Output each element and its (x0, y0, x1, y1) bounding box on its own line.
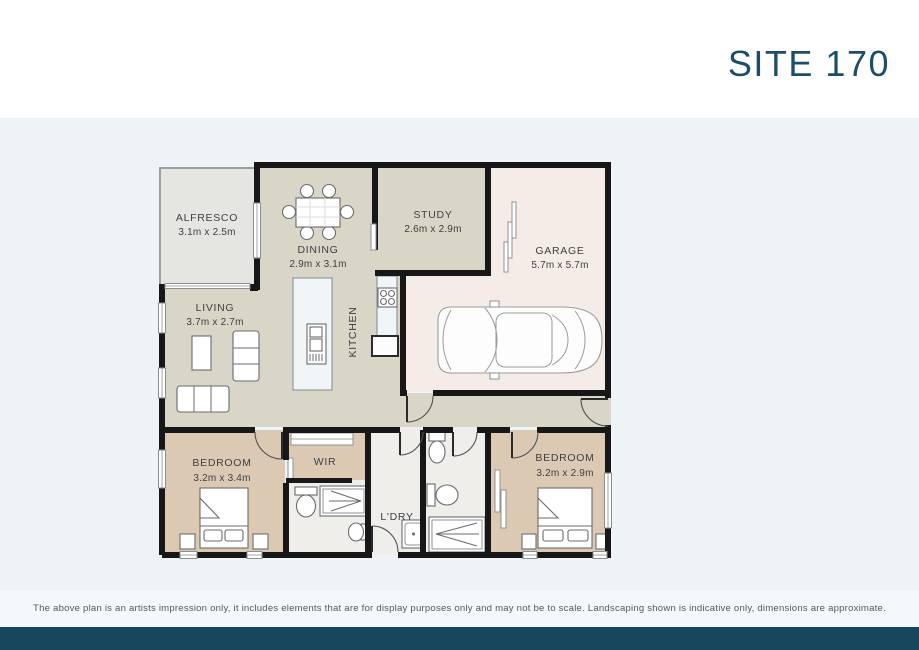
label-kitchen: KITCHEN (347, 307, 359, 358)
label-bedroom-1: BEDROOM (192, 457, 251, 469)
dims-bedroom-2: 3.2m x 2.9m (536, 468, 593, 479)
label-garage: GARAGE (535, 245, 584, 257)
car-icon (438, 301, 602, 379)
label-wir: WIR (314, 456, 337, 468)
dims-garage: 5.7m x 5.7m (531, 260, 588, 271)
dims-living: 3.7m x 2.7m (186, 317, 243, 328)
study-door-leaf (371, 224, 376, 250)
dims-dining: 2.9m x 3.1m (289, 259, 346, 270)
label-bedroom-2: BEDROOM (535, 452, 594, 464)
dims-bedroom-1: 3.2m x 3.4m (193, 473, 250, 484)
label-living: LIVING (196, 302, 235, 314)
footer-bar (0, 627, 919, 650)
dims-alfresco: 3.1m x 2.5m (178, 227, 235, 238)
label-dining: DINING (298, 244, 339, 256)
page-title: SITE 170 (728, 44, 890, 84)
kitchen-island-icon (293, 278, 332, 390)
disclaimer-strip: The above plan is an artists impression … (0, 590, 919, 627)
disclaimer-text: The above plan is an artists impression … (33, 603, 886, 614)
label-laundry: L'DRY (380, 511, 413, 523)
fridge-nook (372, 336, 398, 356)
toilet-icon (427, 484, 435, 506)
floor-plan: ALFRESCO 3.1m x 2.5m DINING 2.9m x 3.1m … (155, 158, 620, 563)
dims-study: 2.6m x 2.9m (404, 224, 461, 235)
label-alfresco: ALFRESCO (176, 212, 238, 224)
label-study: STUDY (413, 209, 452, 221)
toilet-icon (295, 487, 317, 495)
basin-icon (429, 432, 445, 441)
